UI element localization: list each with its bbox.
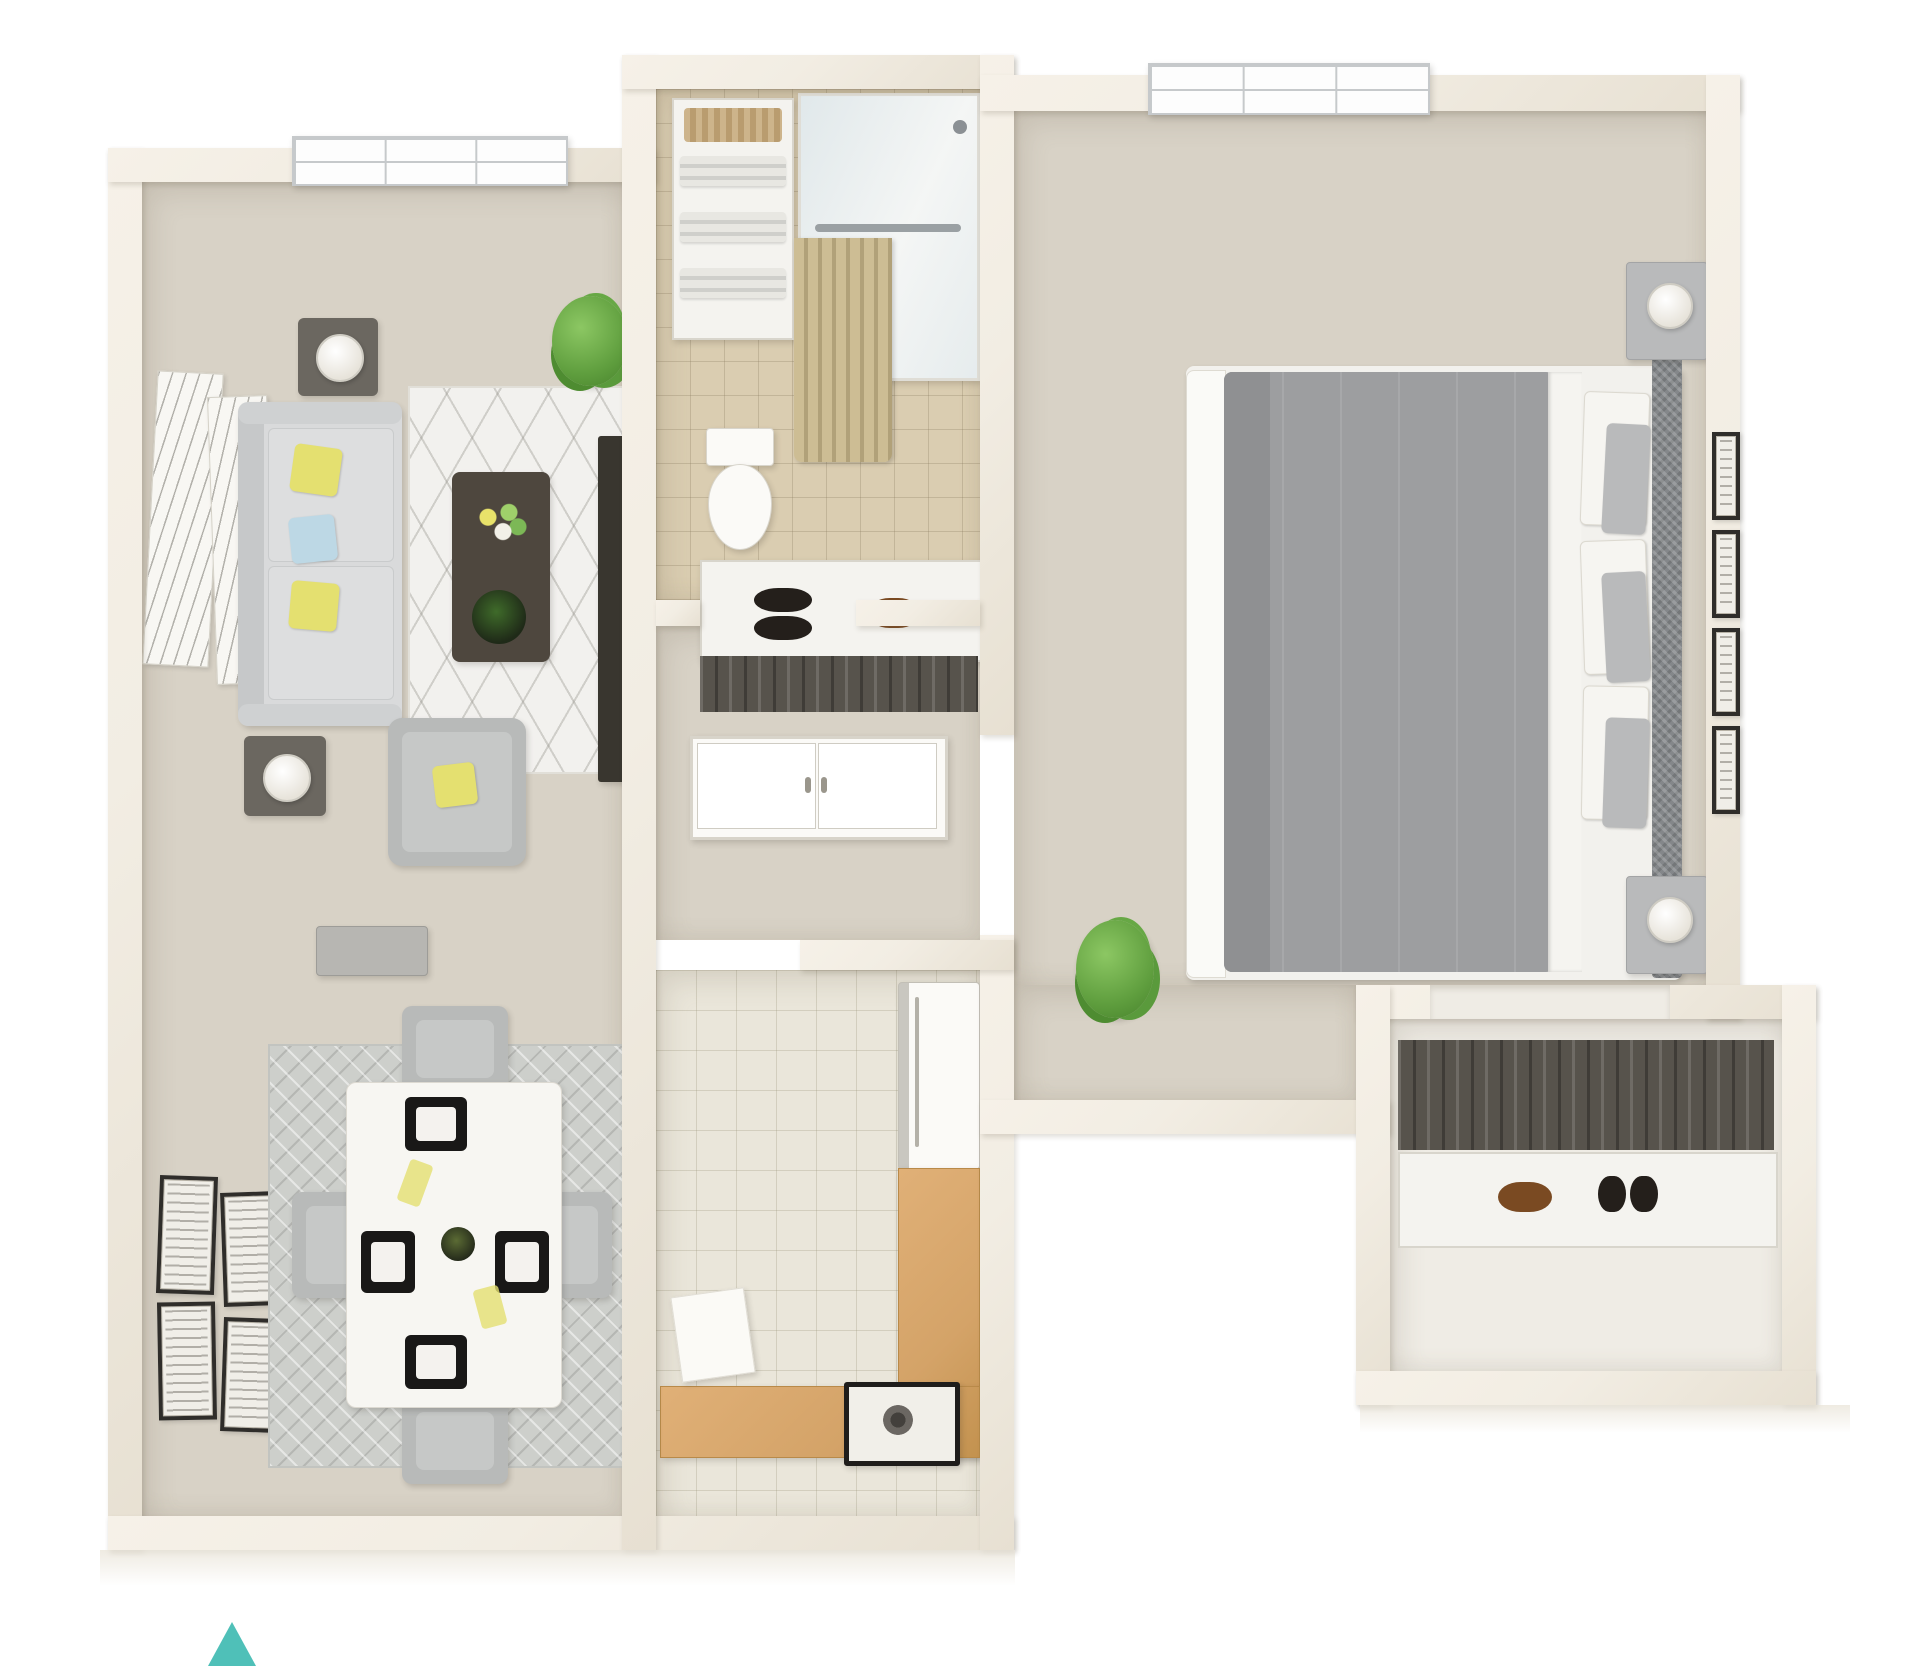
table-lamp-icon [316,334,364,382]
closet-brown-shoe [1498,1182,1552,1212]
black-shoe-2 [754,616,812,640]
coffee-table [452,472,550,662]
towel-shelf-1 [680,156,786,186]
wall-closet-left [1356,985,1390,1405]
fridge-handle-icon [915,997,919,1147]
base-slab-closet [1360,1405,1850,1433]
bedroom-wall-frame-4 [1712,726,1740,814]
wall-strip-top [622,55,1014,89]
shower-head-icon [953,120,967,134]
wall-living-right [622,55,656,1550]
towel-shelf-3 [680,268,786,298]
hall-closet-clothes [700,656,978,712]
nightstand-lower [1626,876,1708,974]
table-runner-accent-1 [396,1158,434,1208]
grab-bar [815,224,961,232]
base-slab-bottom [100,1550,1015,1586]
pillow-blue [288,514,339,565]
wall-kitchen-top [800,940,1014,970]
towel-shelf-2 [680,212,786,242]
toilet-tank [706,428,774,466]
table-centerpiece [441,1227,475,1261]
living-room-plant [552,296,628,386]
side-table-lower [244,736,326,816]
plant-bowl [472,590,526,644]
placemat-bottom [405,1335,467,1389]
living-room-window [292,136,568,186]
wall-strip-right-lower [980,935,1014,1550]
side-table-upper [298,318,378,396]
bedroom-window [1148,63,1430,115]
bedroom-wall-frame-2 [1712,530,1740,618]
bed-pillow-gray-1 [1601,423,1651,535]
sofa [238,402,402,726]
dining-chair-top [402,1006,508,1092]
placemat-right [495,1231,549,1293]
placemat-top [405,1097,467,1151]
bed-pillow-gray-3 [1602,717,1650,828]
stove-burner-icon [883,1405,913,1435]
closet-black-shoe-1 [1598,1176,1626,1212]
chair-seat [416,1020,494,1078]
wall-living-bottom [108,1516,1014,1550]
wicker-basket [684,108,782,142]
bed-footboard [1186,370,1226,978]
flower-arrangement [470,498,530,546]
wall-closet-right [1782,985,1816,1405]
table-lamp-icon [1647,897,1693,943]
closet-black-shoe-2 [1630,1176,1658,1212]
pillow-yellow-1 [289,443,343,497]
dining-table [346,1082,562,1408]
media-console [316,926,428,976]
sofa-arm-top [238,402,402,424]
floor-plan-canvas [0,0,1913,1667]
wall-living-left [108,148,142,1550]
table-lamp-icon [1647,283,1693,329]
table-lamp-icon [263,754,311,802]
wall-bath-hall-left [656,600,700,626]
pillow-yellow-2 [288,580,340,632]
dining-chair-bottom [402,1398,508,1484]
door-handle-icon [821,777,827,793]
north-arrow-icon [208,1622,256,1666]
dining-wall-frame-3 [157,1302,217,1421]
placemat-left [361,1231,415,1293]
shower-curtain [794,238,892,462]
bedroom-floor-lower [1014,985,1356,1100]
wall-closet-bottom [1356,1371,1816,1405]
kitchen-mat [670,1287,755,1382]
sofa-arm-bottom [238,704,402,726]
closet-opening [1430,985,1670,1019]
bed [1186,366,1682,980]
dining-wall-frame-1 [156,1175,218,1295]
bedroom-wall-frame-3 [1712,628,1740,716]
sheet-fold [1548,372,1582,972]
armchair [388,718,526,866]
wall-bath-hall-right [856,600,980,626]
entry-door-left-leaf [697,743,816,829]
bed-pillow-gray-2 [1601,571,1651,683]
refrigerator [898,982,980,1170]
linen-shelves [672,98,794,340]
sofa-back [238,402,264,726]
door-handle-icon [805,777,811,793]
armchair-pillow-yellow [432,762,479,809]
nightstand-upper [1626,262,1708,360]
bedroom-plant [1076,920,1154,1018]
wall-bedroom-bottom [980,1100,1390,1134]
bedroom-wall-frame-1 [1712,432,1740,520]
duvet-foot-fold [1224,372,1270,972]
stove [844,1382,960,1466]
closet-hanging-clothes [1398,1040,1774,1150]
bed-duvet [1224,372,1554,972]
black-shoe-1 [754,588,812,612]
entry-door-right-leaf [818,743,937,829]
wall-strip-right-upper [980,55,1014,735]
entry-door [690,736,948,840]
chair-seat [416,1412,494,1470]
closet-shelf [1398,1152,1778,1248]
